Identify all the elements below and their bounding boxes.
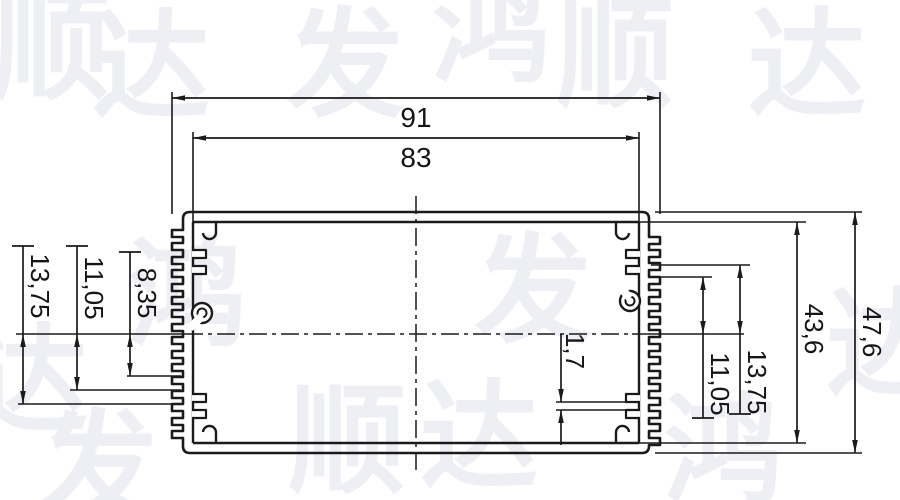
pcb-rib-right — [626, 266, 640, 274]
pcb-rib-left — [192, 250, 206, 258]
dim-overall-height: 47,6 — [655, 212, 887, 453]
dim-left-offsets: 13,75 11,05 8,35 — [12, 246, 181, 404]
dim-label-overall-width: 91 — [400, 102, 431, 133]
technical-drawing-page: 顺 达 发 鸿 顺 达 鸿 发 达 顺 达 发 鸿 达 — [0, 0, 900, 500]
dim-label-right-large: 13,75 — [742, 349, 772, 414]
pcb-rib-right — [626, 410, 640, 418]
dim-label-overall-height: 47,6 — [857, 307, 887, 358]
pcb-rib-right — [626, 250, 640, 258]
dim-label-left-mid: 11,05 — [79, 256, 109, 319]
pcb-rib-left — [192, 394, 206, 402]
dim-label-inner-height: 43,6 — [799, 304, 829, 355]
screw-boss-right — [620, 287, 640, 311]
corner-hook-bottom-right — [616, 426, 629, 443]
screw-boss-left — [190, 303, 212, 328]
dim-label-left-large: 13,75 — [25, 253, 55, 318]
pcb-rib-right — [626, 394, 640, 402]
dim-label-inner-width: 83 — [400, 142, 431, 173]
dim-inner-width: 83 — [193, 132, 639, 240]
pcb-rib-left — [192, 410, 206, 418]
dim-label-right-mid: 11,05 — [705, 352, 735, 415]
centerlines — [16, 196, 744, 470]
dim-label-left-small: 8,35 — [132, 268, 162, 319]
corner-hook-top-right — [616, 222, 629, 239]
pcb-rib-left — [192, 266, 206, 274]
corner-hook-top-left — [203, 222, 216, 239]
dim-label-pcb-slot: 1,7 — [560, 333, 590, 369]
extrusion-profile-drawing: 91 83 13,75 11,05 8,35 — [0, 0, 900, 500]
dim-right-offsets: 11,05 13,75 — [651, 265, 772, 418]
corner-hook-bottom-left — [203, 426, 216, 443]
